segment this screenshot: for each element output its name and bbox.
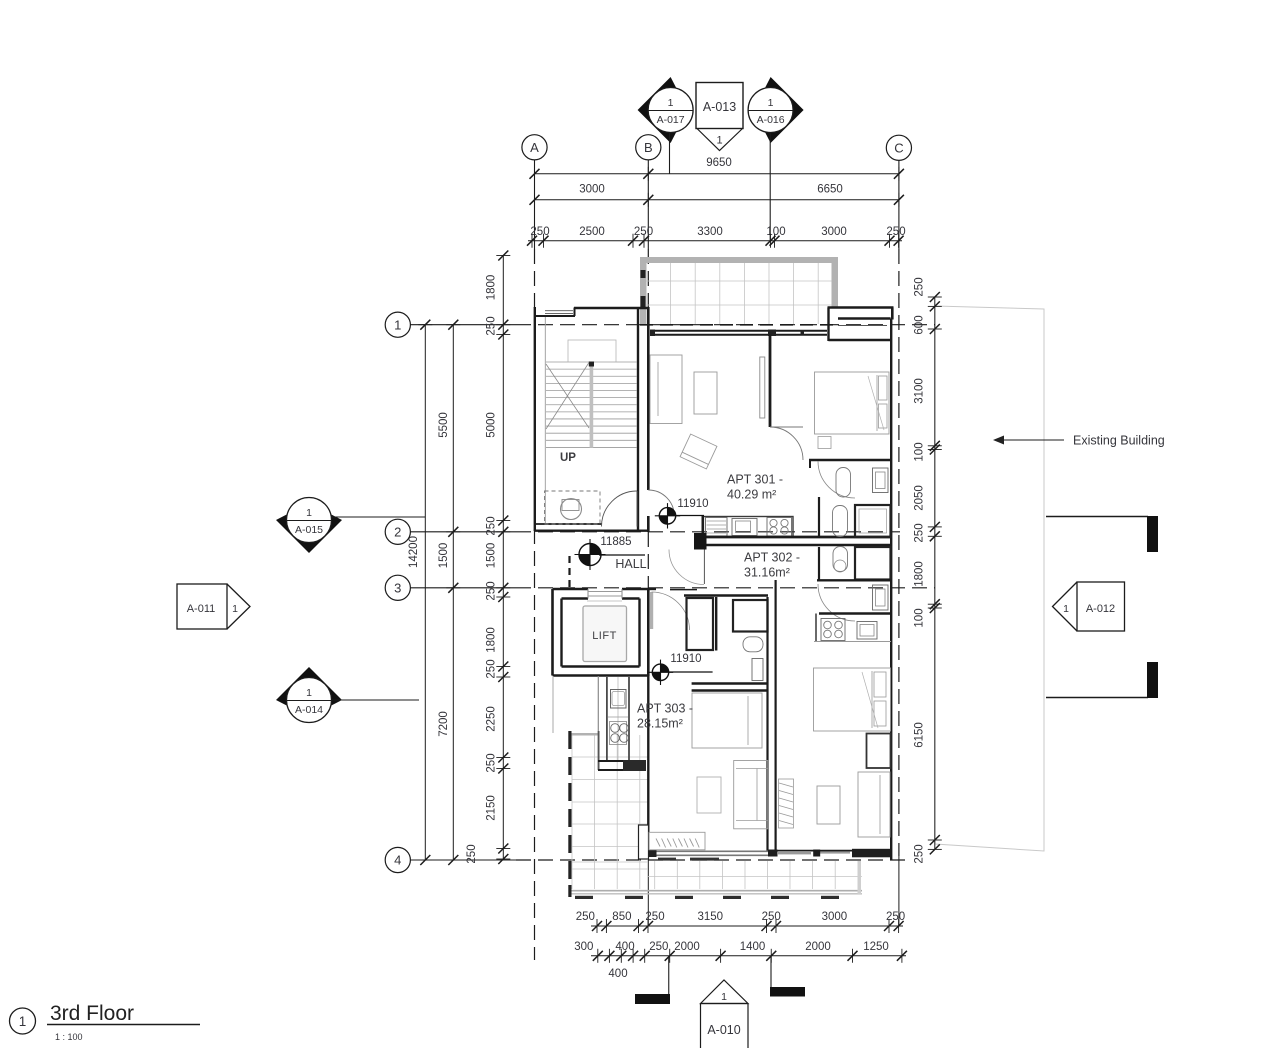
- svg-text:1: 1: [716, 135, 722, 147]
- svg-text:A-016: A-016: [757, 114, 785, 126]
- svg-text:11910: 11910: [677, 498, 708, 510]
- svg-text:400: 400: [615, 941, 634, 953]
- svg-text:250: 250: [486, 659, 498, 678]
- svg-text:1800: 1800: [914, 561, 926, 587]
- svg-text:11910: 11910: [670, 653, 701, 665]
- svg-text:9650: 9650: [706, 157, 732, 169]
- svg-text:250: 250: [634, 226, 653, 238]
- svg-text:1800: 1800: [486, 627, 498, 653]
- svg-text:250: 250: [762, 911, 781, 923]
- svg-text:2150: 2150: [486, 795, 498, 821]
- svg-text:A-013: A-013: [703, 100, 736, 114]
- svg-text:2: 2: [394, 524, 401, 539]
- svg-text:1: 1: [306, 687, 312, 699]
- svg-text:250: 250: [914, 277, 926, 296]
- svg-text:A-012: A-012: [1086, 603, 1115, 615]
- svg-text:3: 3: [394, 580, 401, 595]
- svg-text:3rd Floor: 3rd Floor: [50, 1002, 134, 1025]
- svg-text:250: 250: [486, 581, 498, 600]
- svg-text:2000: 2000: [674, 941, 700, 953]
- svg-text:1800: 1800: [486, 275, 498, 301]
- svg-text:HALL: HALL: [615, 557, 646, 571]
- svg-text:1500: 1500: [438, 543, 450, 569]
- svg-text:31.16m²: 31.16m²: [744, 566, 790, 580]
- svg-text:5000: 5000: [486, 412, 498, 438]
- svg-text:250: 250: [645, 911, 664, 923]
- svg-text:1: 1: [394, 317, 401, 332]
- svg-text:1: 1: [768, 97, 774, 109]
- svg-text:2250: 2250: [486, 706, 498, 732]
- svg-text:6650: 6650: [817, 184, 843, 196]
- svg-text:3300: 3300: [697, 226, 723, 238]
- svg-text:A-011: A-011: [187, 603, 216, 615]
- svg-text:3000: 3000: [821, 226, 847, 238]
- svg-text:1: 1: [721, 991, 727, 1003]
- svg-text:3100: 3100: [914, 378, 926, 404]
- svg-text:850: 850: [612, 911, 631, 923]
- svg-text:100: 100: [914, 442, 926, 461]
- svg-text:100: 100: [914, 608, 926, 627]
- svg-text:1 : 100: 1 : 100: [55, 1032, 83, 1042]
- svg-text:5500: 5500: [438, 412, 450, 438]
- svg-text:1: 1: [232, 603, 238, 615]
- svg-text:3000: 3000: [579, 184, 605, 196]
- svg-text:600: 600: [914, 315, 926, 334]
- svg-text:3000: 3000: [822, 911, 848, 923]
- svg-text:250: 250: [466, 844, 478, 863]
- svg-text:250: 250: [576, 911, 595, 923]
- svg-text:1250: 1250: [863, 941, 889, 953]
- svg-text:6150: 6150: [914, 722, 926, 748]
- svg-text:1: 1: [1063, 603, 1069, 615]
- svg-text:3150: 3150: [698, 911, 724, 923]
- svg-text:1400: 1400: [740, 941, 766, 953]
- svg-text:C: C: [894, 140, 903, 155]
- svg-text:300: 300: [574, 941, 593, 953]
- svg-text:APT 303 -: APT 303 -: [637, 702, 693, 716]
- svg-text:Existing Building: Existing Building: [1073, 434, 1165, 448]
- svg-text:7200: 7200: [438, 711, 450, 737]
- svg-text:UP: UP: [560, 452, 576, 464]
- svg-text:250: 250: [886, 911, 905, 923]
- svg-text:14200: 14200: [408, 536, 420, 568]
- svg-text:250: 250: [649, 941, 668, 953]
- svg-text:2000: 2000: [805, 941, 831, 953]
- svg-text:250: 250: [486, 316, 498, 335]
- svg-text:APT 301 -: APT 301 -: [727, 473, 783, 487]
- svg-text:A-014: A-014: [295, 704, 323, 716]
- svg-text:11885: 11885: [600, 536, 631, 548]
- svg-text:250: 250: [914, 844, 926, 863]
- svg-text:2050: 2050: [914, 485, 926, 511]
- svg-text:2500: 2500: [579, 226, 605, 238]
- svg-text:250: 250: [914, 523, 926, 542]
- svg-text:1: 1: [306, 507, 312, 519]
- svg-text:A: A: [530, 140, 539, 155]
- svg-text:A-017: A-017: [657, 114, 685, 126]
- svg-text:250: 250: [530, 226, 549, 238]
- svg-text:1: 1: [668, 97, 674, 109]
- svg-text:LIFT: LIFT: [592, 630, 617, 642]
- svg-text:100: 100: [766, 226, 785, 238]
- svg-text:250: 250: [886, 226, 905, 238]
- svg-text:A-010: A-010: [707, 1023, 740, 1037]
- svg-text:400: 400: [608, 968, 627, 980]
- svg-text:40.29 m²: 40.29 m²: [727, 488, 776, 502]
- svg-text:250: 250: [486, 753, 498, 772]
- svg-text:250: 250: [486, 516, 498, 535]
- svg-text:B: B: [644, 140, 653, 155]
- svg-text:APT 302 -: APT 302 -: [744, 551, 800, 565]
- svg-text:1500: 1500: [486, 543, 498, 569]
- svg-text:4: 4: [394, 853, 401, 868]
- svg-text:A-015: A-015: [295, 524, 323, 536]
- svg-text:1: 1: [19, 1014, 27, 1029]
- svg-text:28.15m²: 28.15m²: [637, 717, 683, 731]
